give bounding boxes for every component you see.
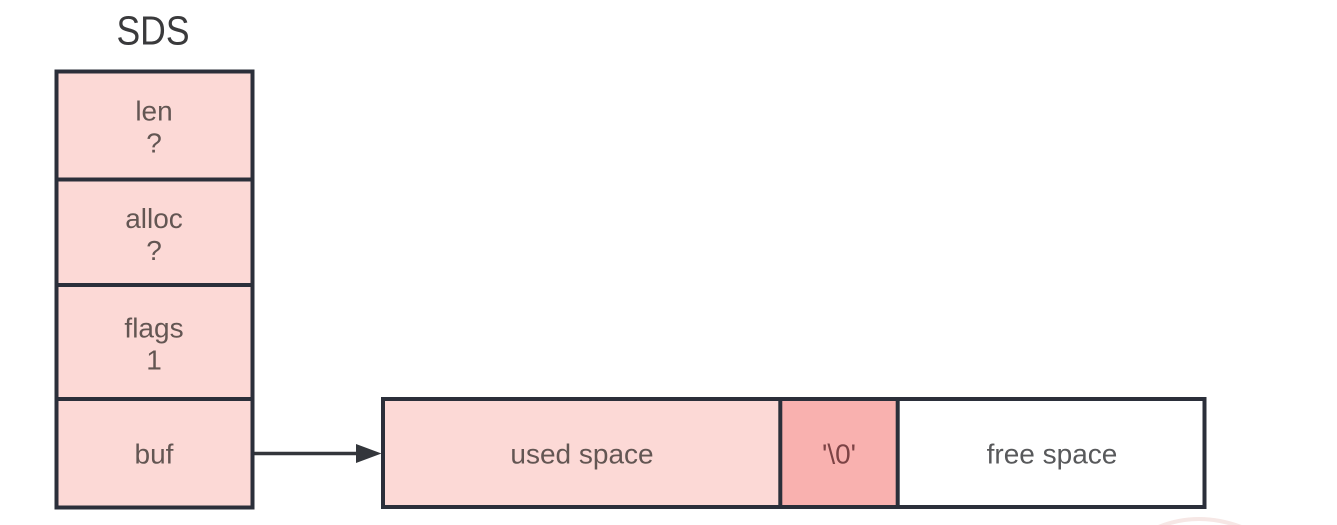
svg-text:'\0': '\0' — [822, 439, 856, 470]
svg-text:alloc: alloc — [125, 203, 183, 234]
svg-text:flags: flags — [124, 313, 183, 344]
svg-text:len: len — [135, 96, 172, 127]
svg-text:free space: free space — [987, 439, 1118, 470]
svg-text:?: ? — [146, 128, 162, 159]
svg-text:buf: buf — [135, 439, 174, 470]
svg-text:?: ? — [146, 235, 162, 266]
svg-text:used space: used space — [510, 439, 653, 470]
svg-text:1: 1 — [146, 345, 162, 376]
svg-text:SDS: SDS — [117, 8, 190, 54]
